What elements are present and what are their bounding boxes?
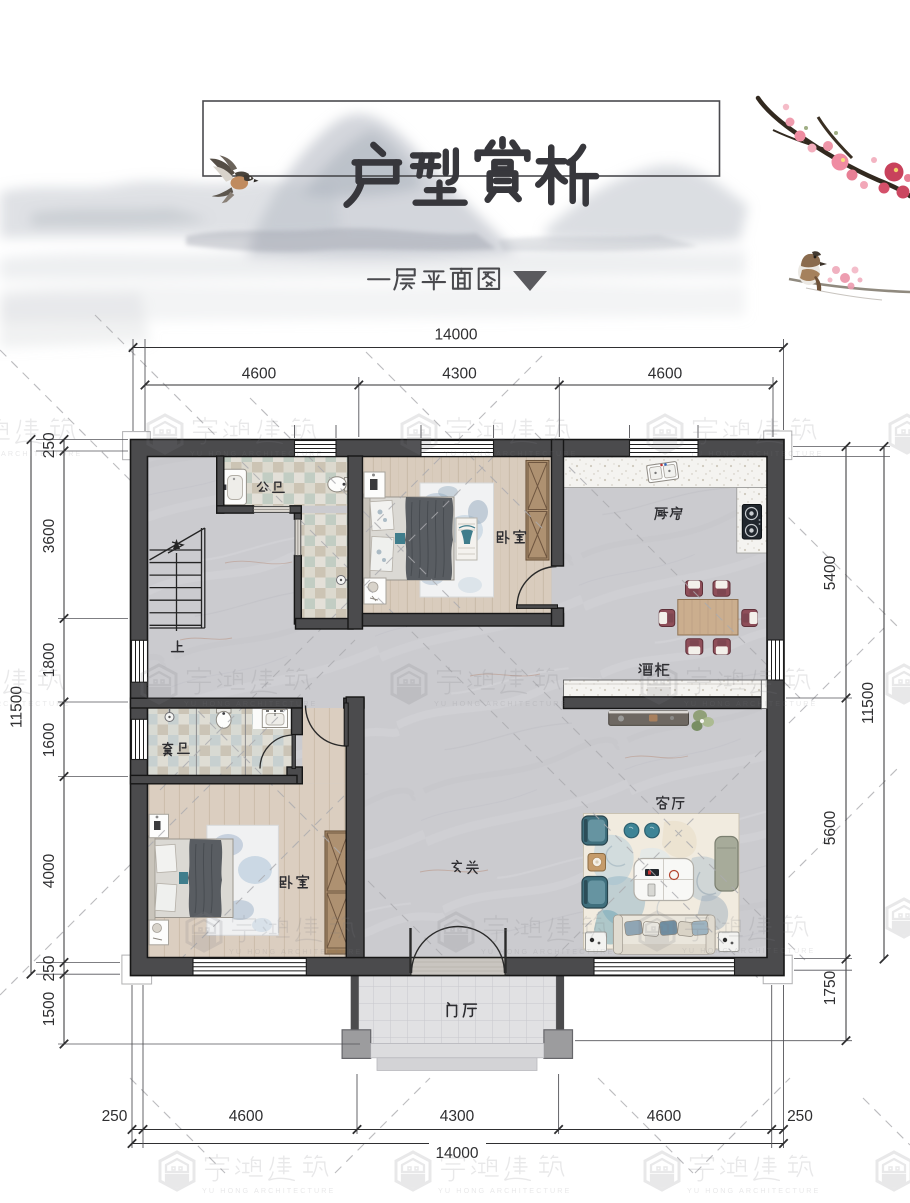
- svg-text:1500: 1500: [41, 991, 58, 1026]
- svg-text:4600: 4600: [647, 1108, 682, 1125]
- svg-text:5600: 5600: [822, 810, 839, 845]
- svg-text:4300: 4300: [440, 1108, 475, 1125]
- svg-text:1750: 1750: [822, 970, 839, 1005]
- svg-text:4600: 4600: [242, 366, 277, 383]
- svg-text:3600: 3600: [41, 518, 58, 553]
- svg-text:250: 250: [787, 1108, 813, 1125]
- svg-text:1800: 1800: [41, 642, 58, 677]
- svg-text:250: 250: [41, 955, 58, 981]
- svg-text:5400: 5400: [822, 555, 839, 590]
- svg-text:1600: 1600: [41, 722, 58, 757]
- svg-text:250: 250: [102, 1108, 128, 1125]
- svg-text:11500: 11500: [860, 682, 877, 724]
- svg-text:4000: 4000: [41, 853, 58, 888]
- svg-text:14000: 14000: [434, 327, 477, 344]
- svg-text:4600: 4600: [648, 366, 683, 383]
- svg-text:4600: 4600: [229, 1108, 264, 1125]
- svg-text:4300: 4300: [442, 366, 477, 383]
